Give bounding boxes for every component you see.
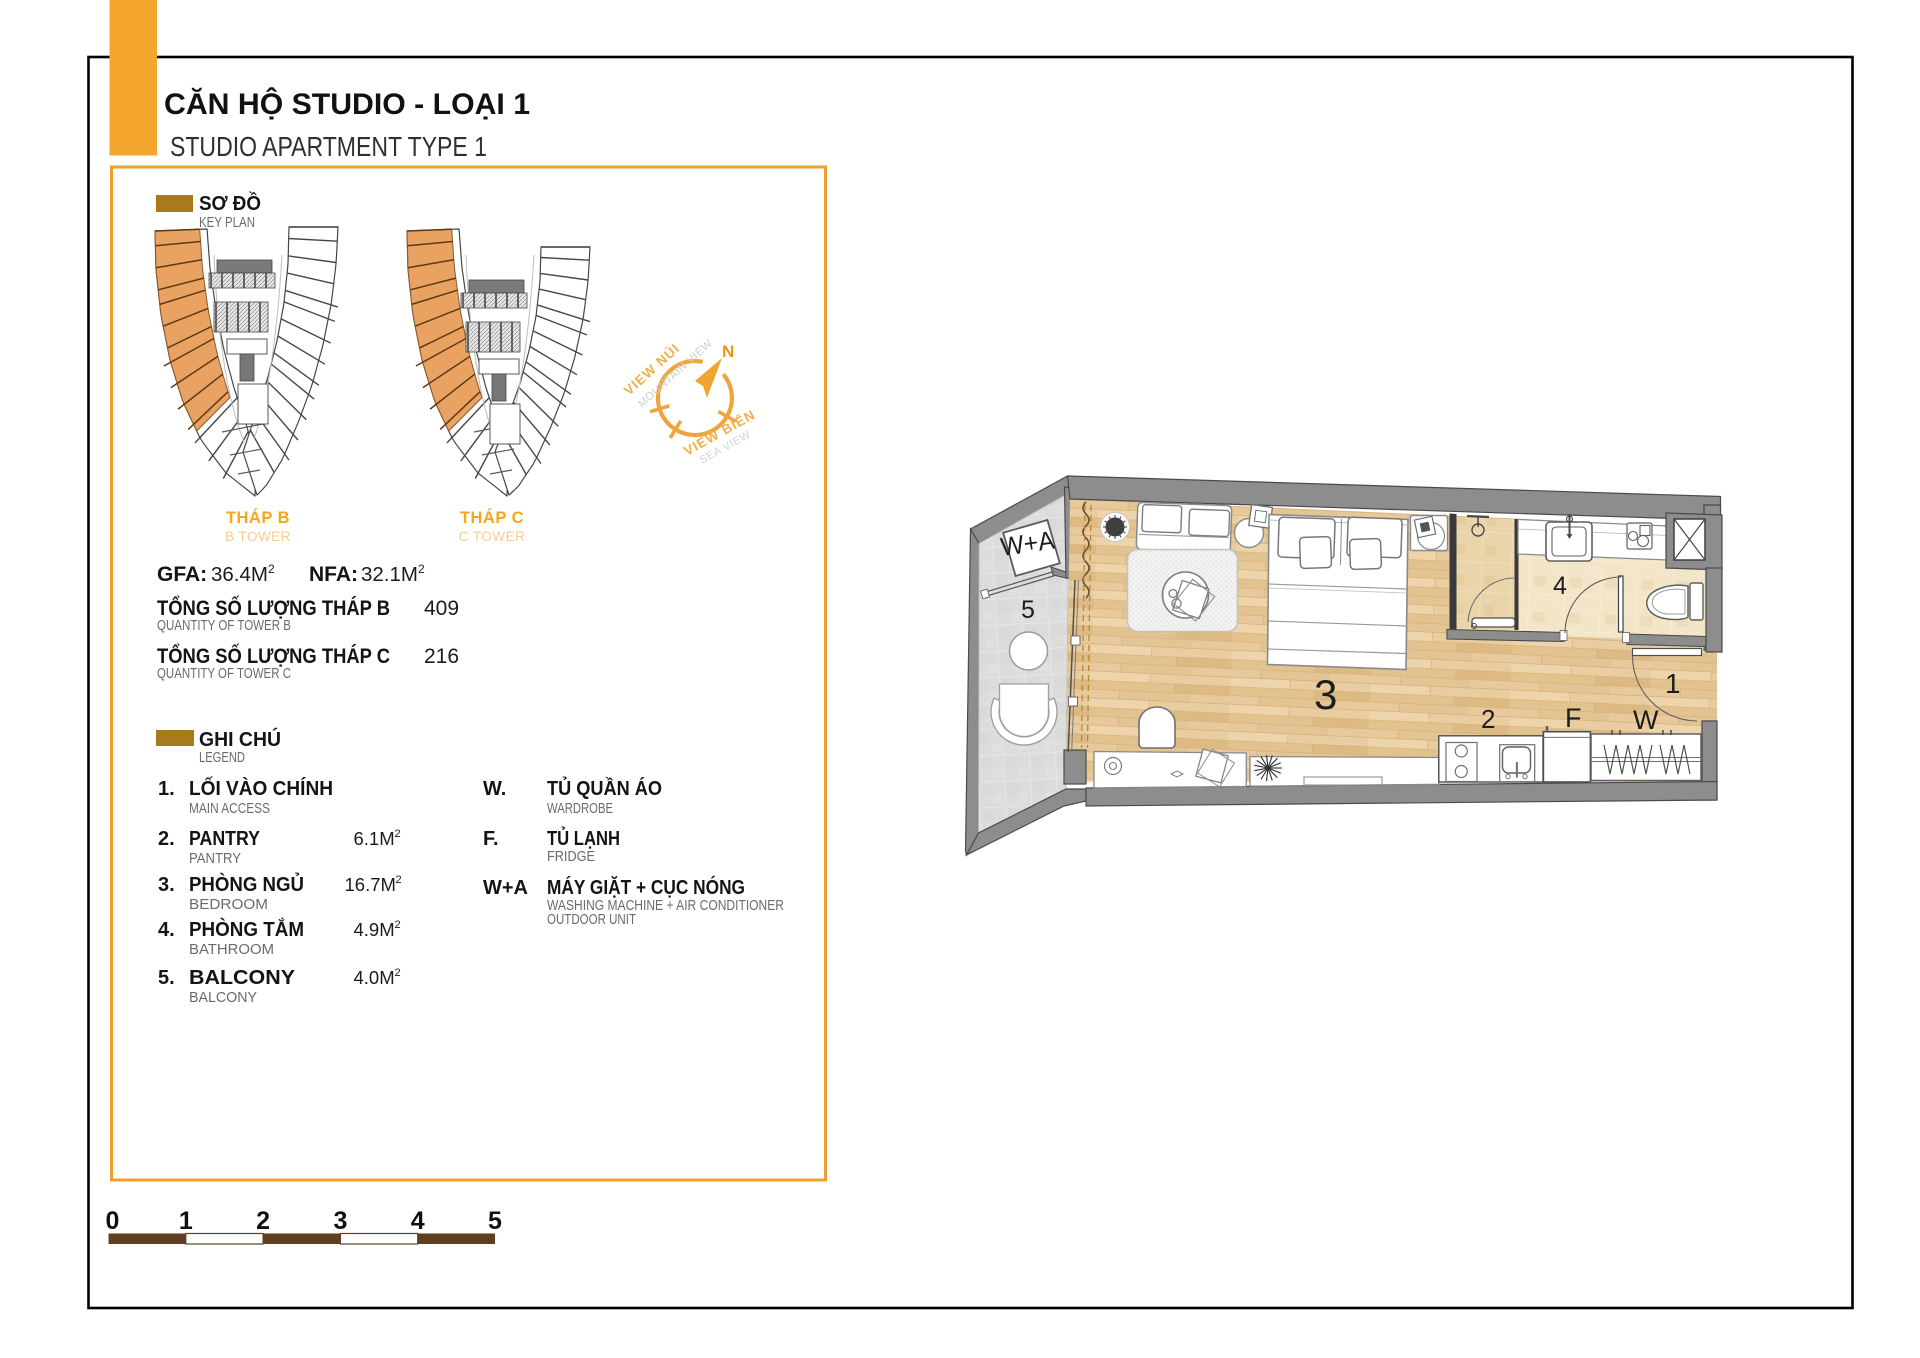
svg-text:PANTRY: PANTRY [189, 851, 241, 867]
svg-text:4.: 4. [158, 919, 175, 941]
svg-text:1: 1 [1665, 668, 1681, 699]
svg-text:TỦ QUẦN ÁO: TỦ QUẦN ÁO [547, 776, 662, 800]
svg-text:3.: 3. [158, 874, 175, 896]
svg-text:CĂN HỘ STUDIO - LOẠI 1: CĂN HỘ STUDIO - LOẠI 1 [164, 87, 530, 121]
svg-text:BALCONY: BALCONY [189, 967, 296, 989]
svg-text:2: 2 [395, 967, 401, 979]
svg-text:SƠ ĐỒ: SƠ ĐỒ [199, 191, 261, 215]
svg-text:C TOWER: C TOWER [459, 529, 526, 544]
svg-text:409: 409 [424, 597, 459, 620]
svg-text:TỦ LẠNH: TỦ LẠNH [547, 826, 620, 850]
svg-text:THÁP C: THÁP C [460, 508, 524, 527]
svg-text:PANTRY: PANTRY [189, 828, 261, 850]
svg-text:2: 2 [396, 874, 402, 886]
svg-text:QUANTITY OF TOWER C: QUANTITY OF TOWER C [157, 666, 291, 682]
svg-text:LỐI VÀO CHÍNH: LỐI VÀO CHÍNH [189, 776, 333, 800]
svg-text:OUTDOOR UNIT: OUTDOOR UNIT [547, 912, 636, 928]
svg-text:32.1M: 32.1M [361, 563, 418, 586]
svg-text:PHÒNG TẮM: PHÒNG TẮM [189, 917, 304, 941]
svg-text:THÁP B: THÁP B [226, 508, 290, 527]
svg-text:4.9M: 4.9M [354, 919, 395, 940]
svg-text:5.: 5. [158, 967, 175, 989]
svg-text:W+A: W+A [483, 877, 528, 899]
svg-text:0: 0 [106, 1207, 120, 1235]
svg-text:216: 216 [424, 645, 459, 668]
svg-text:2: 2 [395, 919, 401, 931]
svg-text:1.: 1. [158, 778, 175, 800]
svg-text:LEGEND: LEGEND [199, 749, 245, 766]
svg-text:GHI CHÚ: GHI CHÚ [199, 727, 281, 751]
svg-text:1: 1 [179, 1207, 193, 1235]
svg-text:TỔNG SỐ LƯỢNG THÁP B: TỔNG SỐ LƯỢNG THÁP B [157, 594, 390, 620]
svg-text:2: 2 [1481, 704, 1495, 734]
svg-text:N: N [722, 342, 734, 361]
svg-text:2: 2 [256, 1207, 270, 1235]
svg-text:4.0M: 4.0M [354, 967, 395, 988]
svg-text:2: 2 [395, 828, 401, 840]
svg-text:6.1M: 6.1M [354, 828, 395, 849]
svg-text:16.7M: 16.7M [345, 874, 396, 895]
svg-text:5: 5 [1021, 596, 1035, 624]
svg-text:TỔNG SỐ LƯỢNG THÁP C: TỔNG SỐ LƯỢNG THÁP C [157, 642, 390, 668]
svg-text:BALCONY: BALCONY [189, 990, 257, 1006]
svg-text:BEDROOM: BEDROOM [189, 897, 268, 913]
svg-text:BATHROOM: BATHROOM [189, 942, 274, 958]
svg-text:FRIDGE: FRIDGE [547, 849, 595, 865]
svg-text:4: 4 [411, 1207, 425, 1235]
svg-text:W.: W. [483, 778, 506, 800]
svg-text:MAIN ACCESS: MAIN ACCESS [189, 801, 270, 817]
svg-text:36.4M: 36.4M [211, 563, 268, 586]
svg-text:5: 5 [488, 1207, 502, 1235]
svg-text:KEY PLAN: KEY PLAN [199, 214, 255, 231]
svg-text:NFA:: NFA: [309, 563, 358, 586]
svg-text:3: 3 [333, 1207, 347, 1235]
svg-text:B TOWER: B TOWER [225, 529, 291, 544]
svg-text:2: 2 [418, 562, 425, 576]
svg-text:W: W [1633, 705, 1659, 735]
svg-text:STUDIO APARTMENT TYPE 1: STUDIO APARTMENT TYPE 1 [170, 131, 487, 162]
svg-text:GFA:: GFA: [157, 563, 207, 586]
svg-text:WARDROBE: WARDROBE [547, 801, 613, 817]
svg-text:F.: F. [483, 828, 499, 850]
svg-text:2.: 2. [158, 828, 175, 850]
svg-text:3: 3 [1314, 671, 1337, 718]
svg-text:2: 2 [268, 562, 275, 576]
svg-text:PHÒNG NGỦ: PHÒNG NGỦ [189, 872, 304, 896]
svg-text:F: F [1565, 703, 1582, 733]
svg-text:4: 4 [1553, 572, 1567, 600]
svg-text:QUANTITY OF TOWER B: QUANTITY OF TOWER B [157, 618, 291, 634]
svg-text:MÁY GIẶT + CỤC NÓNG: MÁY GIẶT + CỤC NÓNG [547, 875, 745, 899]
